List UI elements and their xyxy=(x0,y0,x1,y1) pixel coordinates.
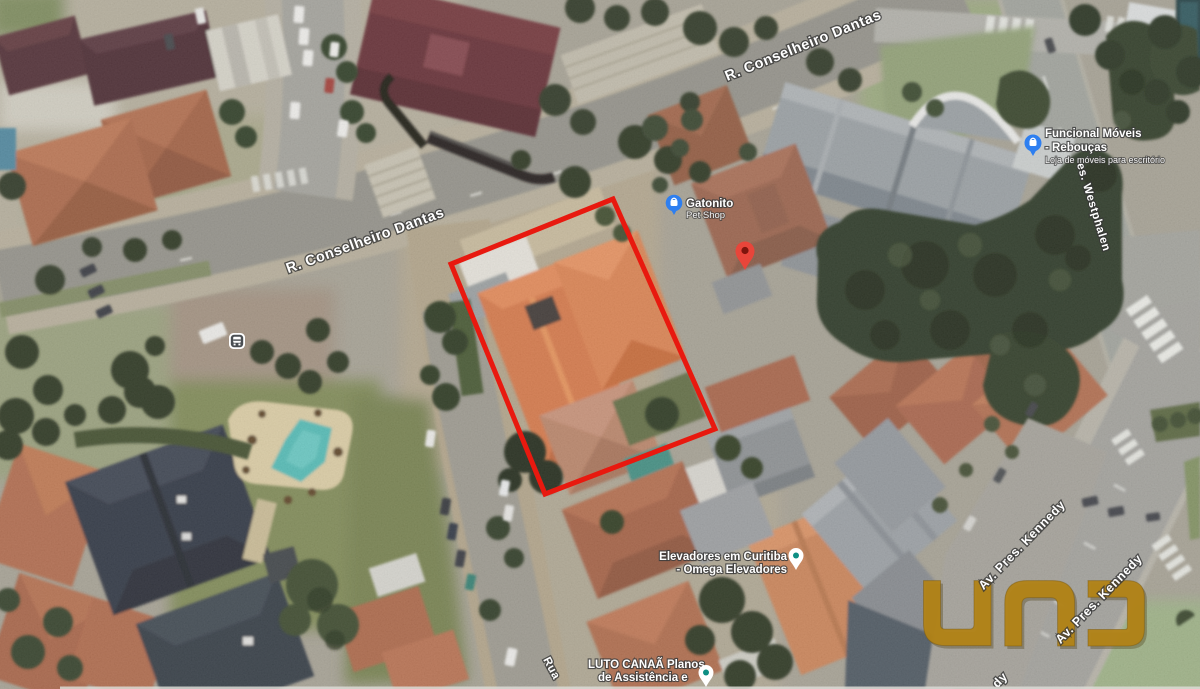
svg-text:LUTO CANAÃ Planos: LUTO CANAÃ Planos xyxy=(588,658,705,671)
svg-text:Pet Shop: Pet Shop xyxy=(686,210,725,221)
svg-text:Gatonito: Gatonito xyxy=(686,198,733,210)
svg-text:Loja de móveis para escritório: Loja de móveis para escritório xyxy=(1045,155,1165,165)
svg-text:- Rebouças: - Rebouças xyxy=(1045,142,1107,154)
svg-text:- Omega Elevadores: - Omega Elevadores xyxy=(676,564,787,576)
svg-text:de Assistência e: de Assistência e xyxy=(598,672,688,684)
svg-text:Funcional Móveis: Funcional Móveis xyxy=(1045,128,1142,140)
svg-text:Elevadores em Curitiba: Elevadores em Curitiba xyxy=(659,551,787,563)
